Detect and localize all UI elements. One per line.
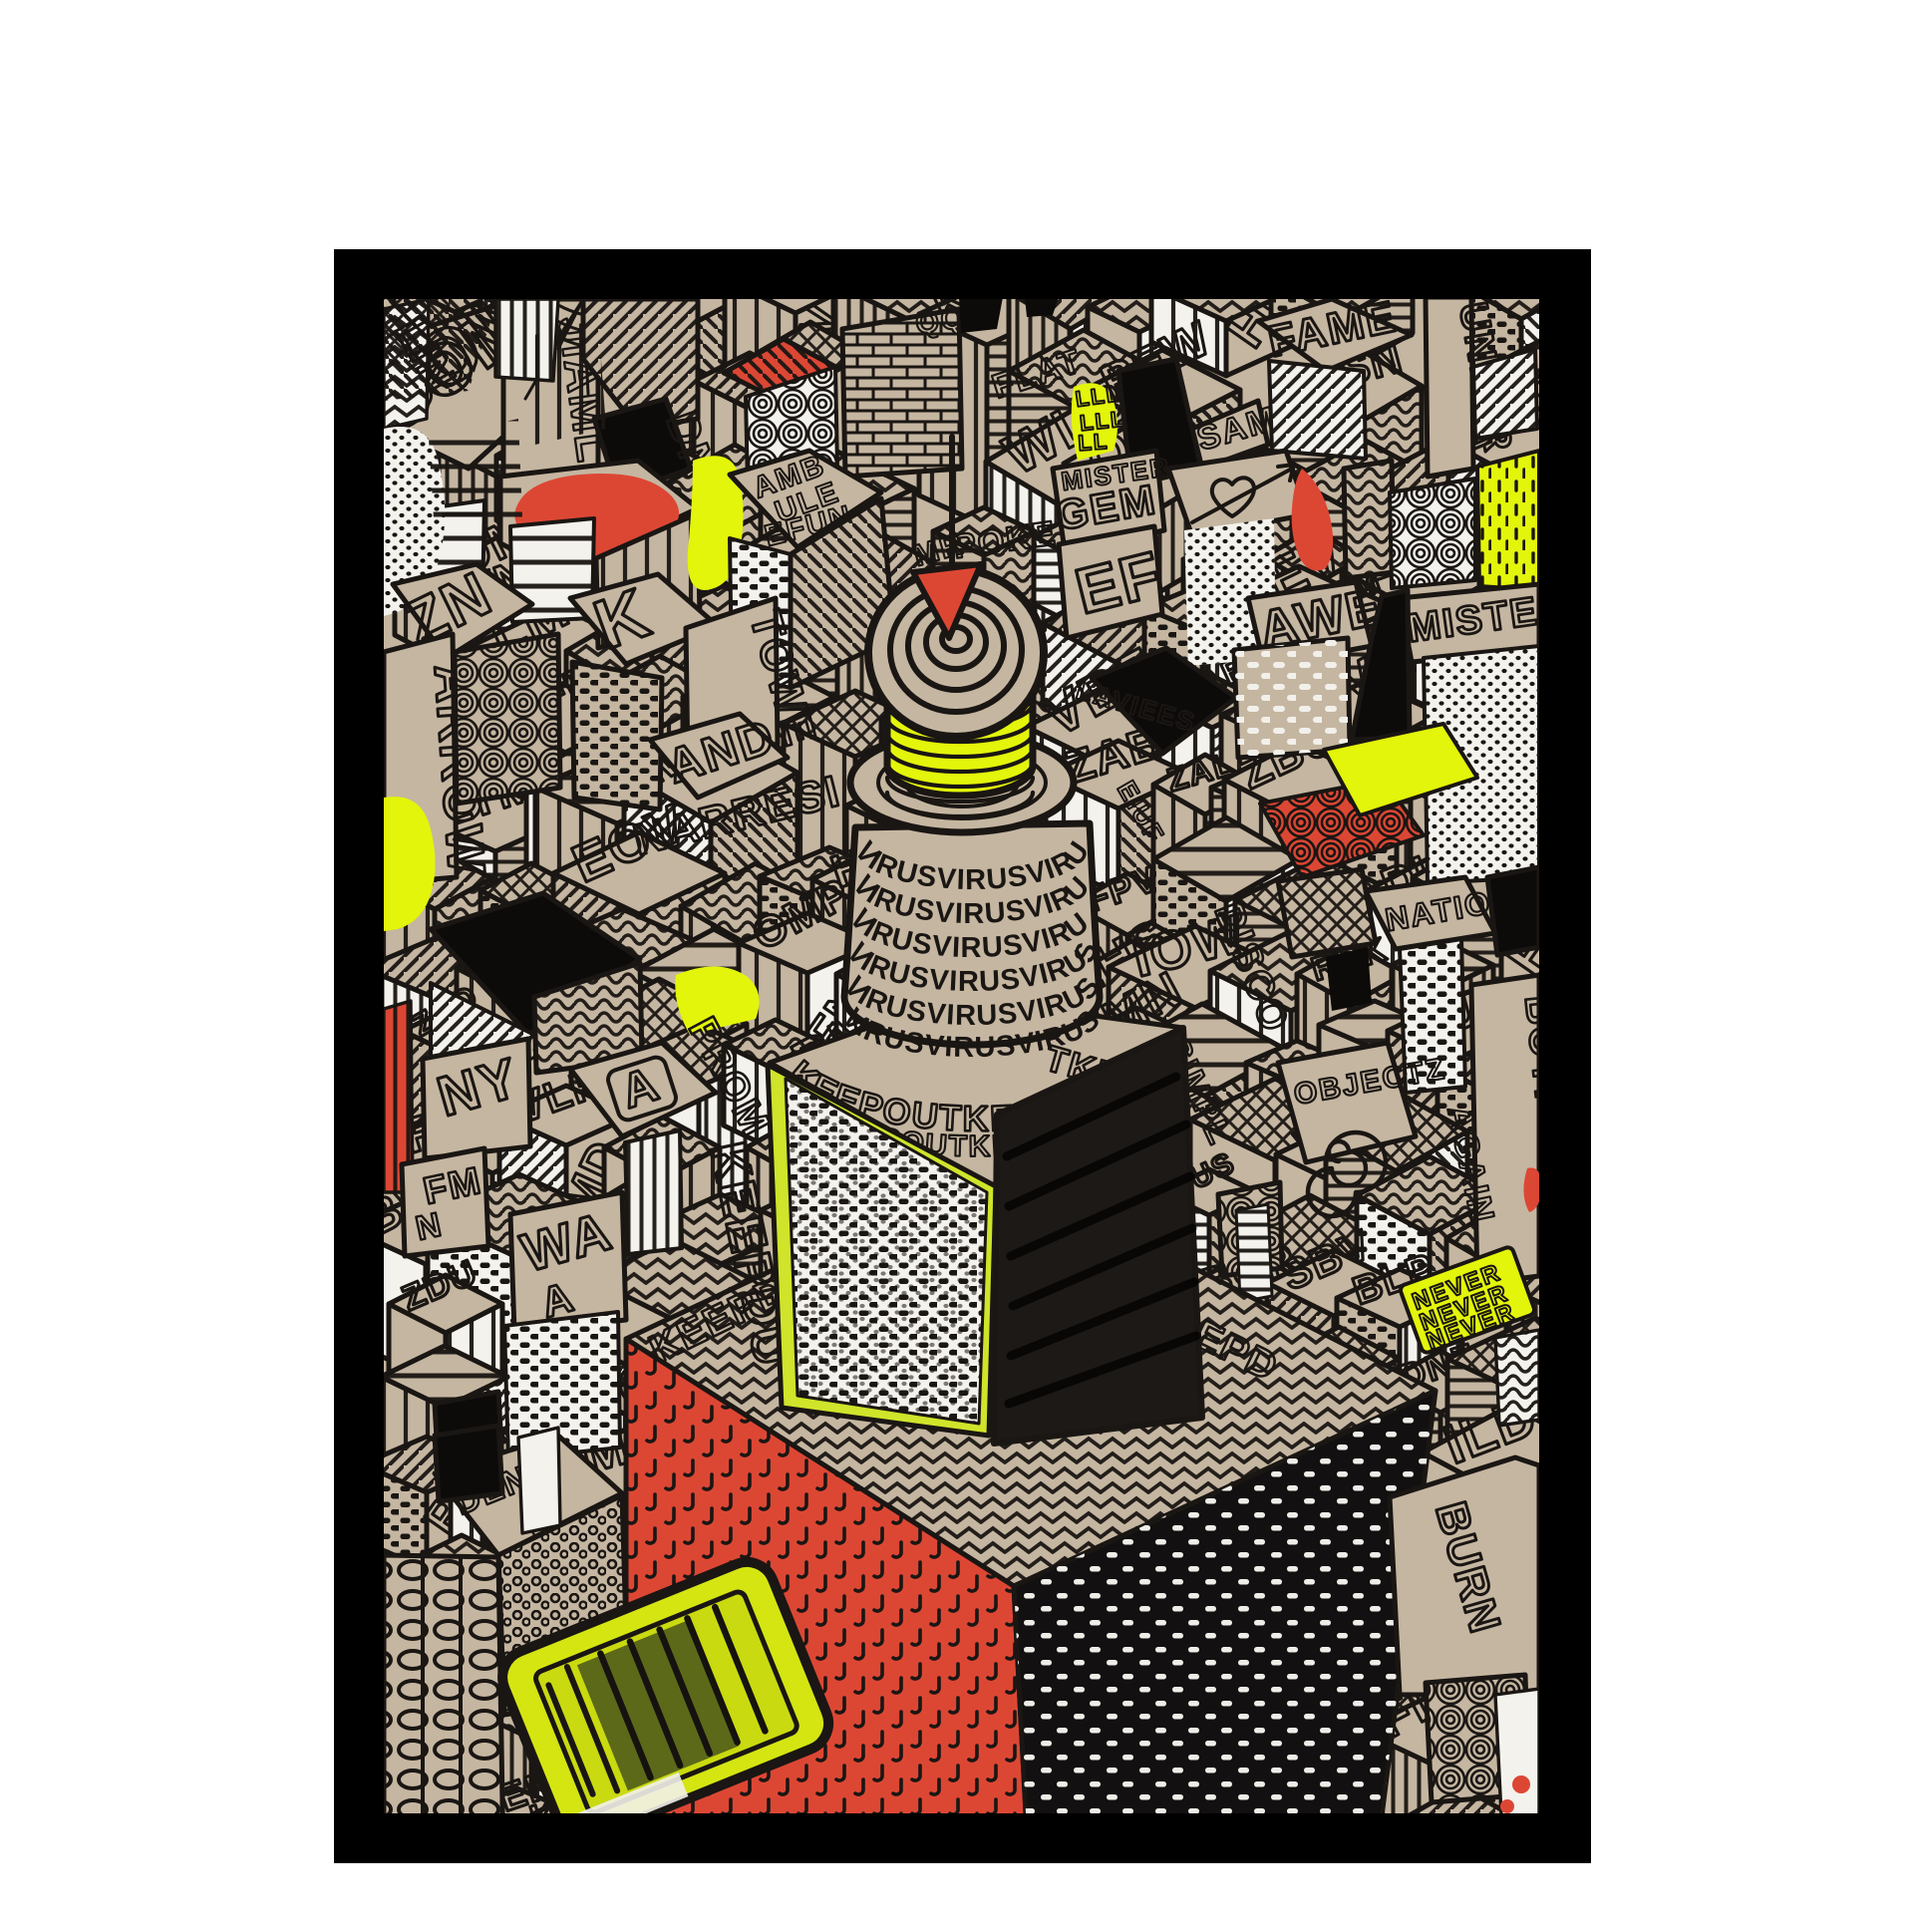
svg-text:LL: LL: [1078, 429, 1111, 456]
